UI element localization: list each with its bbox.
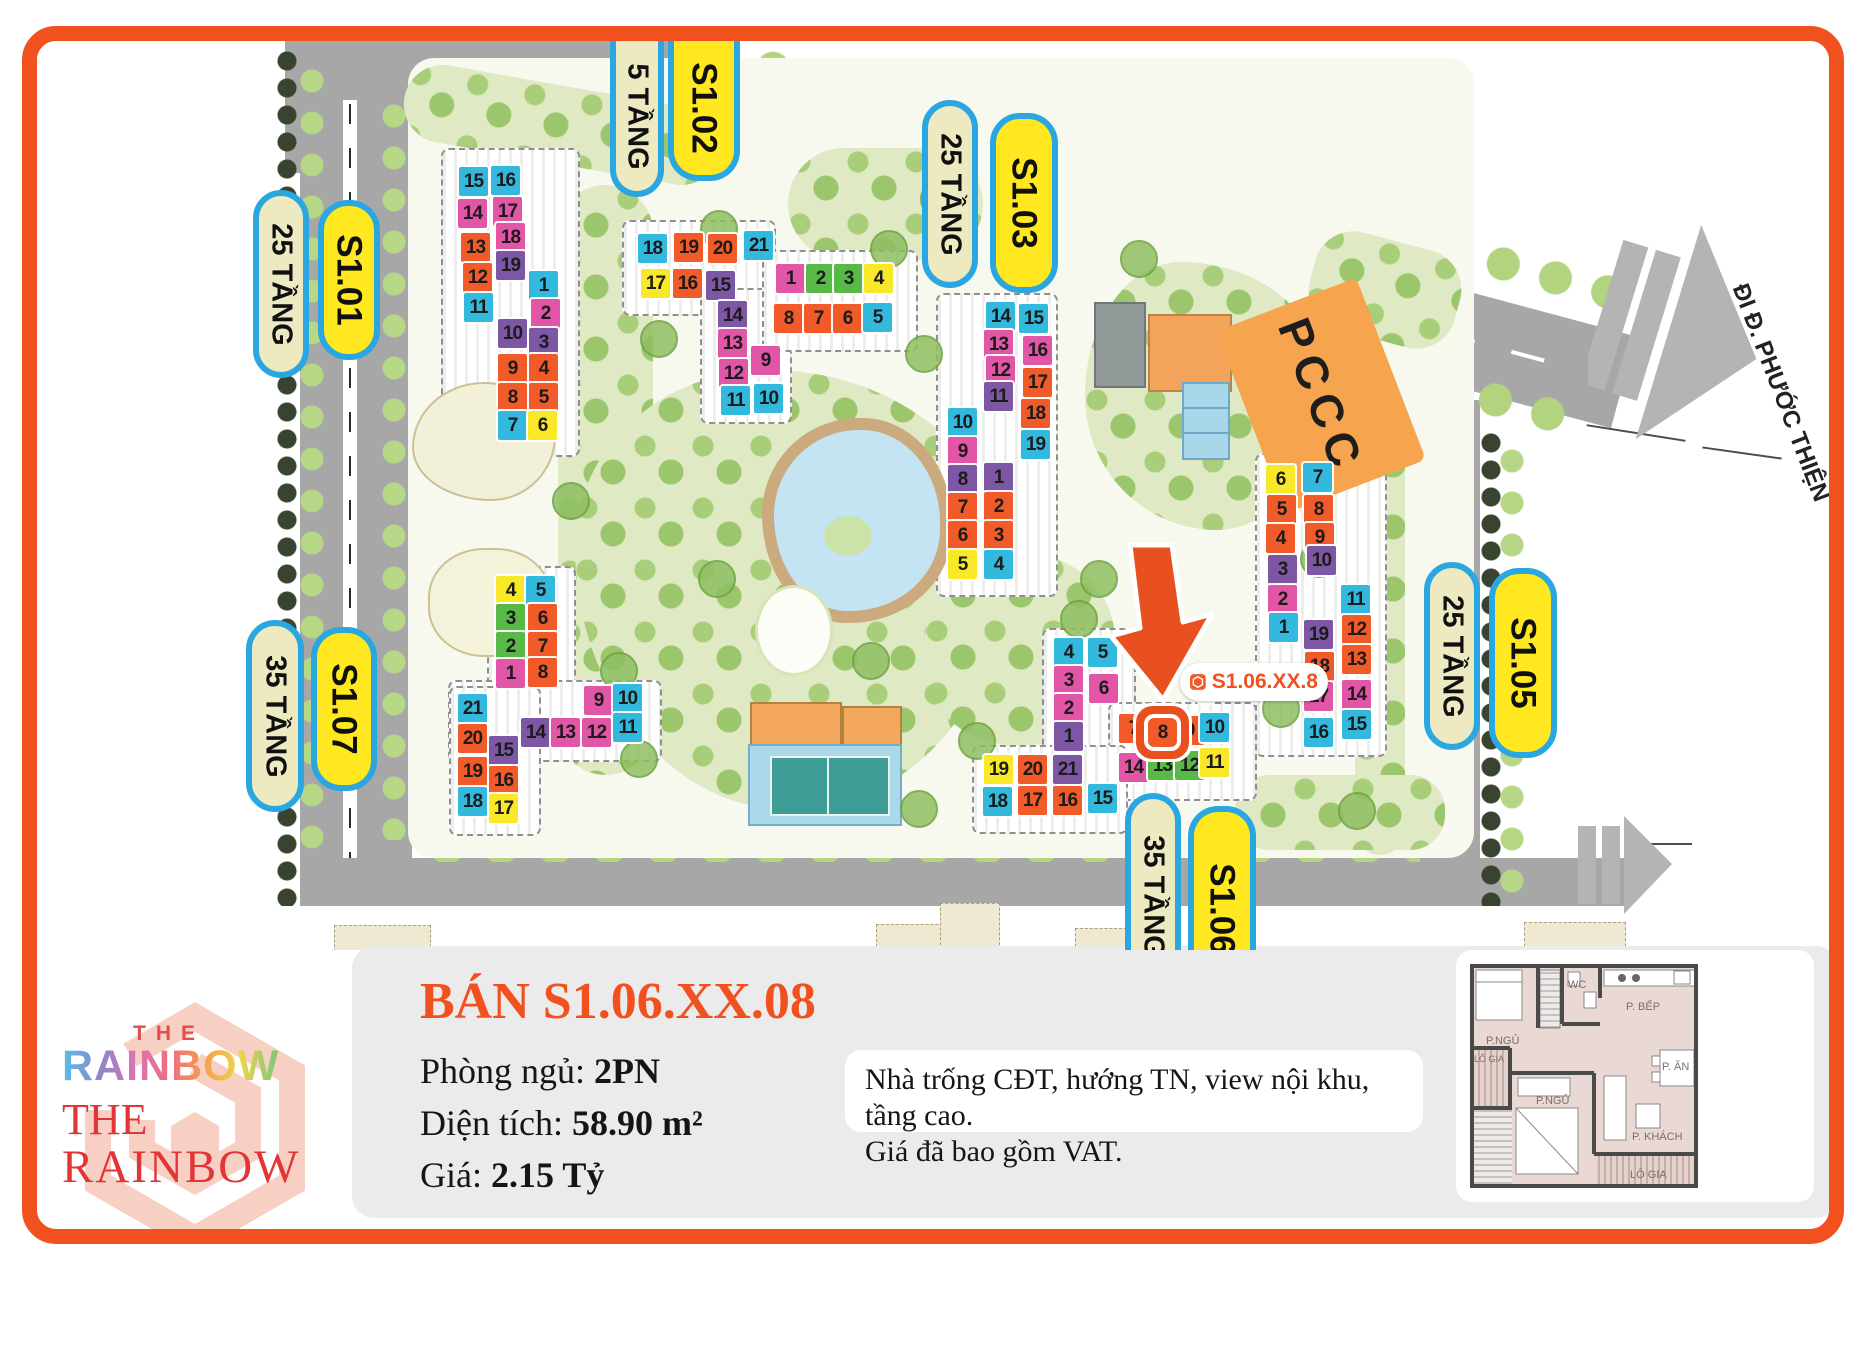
map-label-35-TẦNG: 35 TẦNG <box>246 620 304 812</box>
map-label-S1.06: S1.06 <box>1188 806 1256 950</box>
unit-marker-badge[interactable]: S1.06.XX.8 <box>1180 663 1328 701</box>
field-area: Diện tích: 58.90 m² <box>420 1102 703 1144</box>
brand-the-serif: THE <box>62 1094 148 1145</box>
floorplan-thumbnail[interactable]: P.NGỦ WC P. BẾP LÔ GIA P.NGỦ P. ĂN P. KH… <box>1456 950 1814 1202</box>
room-label: P. BẾP <box>1626 1000 1660 1013</box>
room-label: P.NGỦ <box>1486 1034 1519 1047</box>
brand-rainbow-gradient: RAINBOW <box>62 1042 279 1091</box>
brand-rainbow-serif: RAINBOW <box>62 1140 301 1194</box>
listing-note: Nhà trống CĐT, hướng TN, view nội khu, t… <box>845 1050 1423 1132</box>
marker-logo-icon <box>1190 670 1206 694</box>
room-label: LÔ GIA <box>1474 1054 1504 1064</box>
room-label: P. KHÁCH <box>1632 1130 1683 1143</box>
map-label-S1.02: S1.02 <box>668 41 740 181</box>
map-label-S1.03: S1.03 <box>990 113 1058 293</box>
room-label: P.NGỦ <box>1536 1094 1569 1107</box>
room-label: P. ĂN <box>1662 1060 1689 1073</box>
map-label-35-TẦNG: 35 TẦNG <box>1125 793 1181 950</box>
map-label-S1.05: S1.05 <box>1489 568 1557 758</box>
map-label-S1.01: S1.01 <box>318 200 380 360</box>
map-label-25-TẦNG: 25 TẦNG <box>253 190 309 378</box>
map-label-25-TẦNG: 25 TẦNG <box>1424 562 1480 750</box>
field-price: Giá: 2.15 Tỷ <box>420 1154 703 1196</box>
room-label: LÔ GIA <box>1630 1168 1667 1181</box>
map-label-5-TẦNG: 5 TẦNG <box>610 41 664 197</box>
map-label-S1.07: S1.07 <box>311 627 377 791</box>
listing-fields: Phòng ngủ: 2PN Diện tích: 58.90 m² Giá: … <box>420 1050 703 1206</box>
map-label-25-TẦNG: 25 TẦNG <box>922 100 978 288</box>
master-plan-map: ĐI Đ. PHƯỚC THIỆN <box>22 26 1844 950</box>
listing-title: BÁN S1.06.XX.08 <box>420 972 816 1031</box>
room-label: WC <box>1568 979 1586 991</box>
field-bedrooms: Phòng ngủ: 2PN <box>420 1050 703 1092</box>
listing-card: ĐI Đ. PHƯỚC THIỆN <box>22 26 1844 1244</box>
